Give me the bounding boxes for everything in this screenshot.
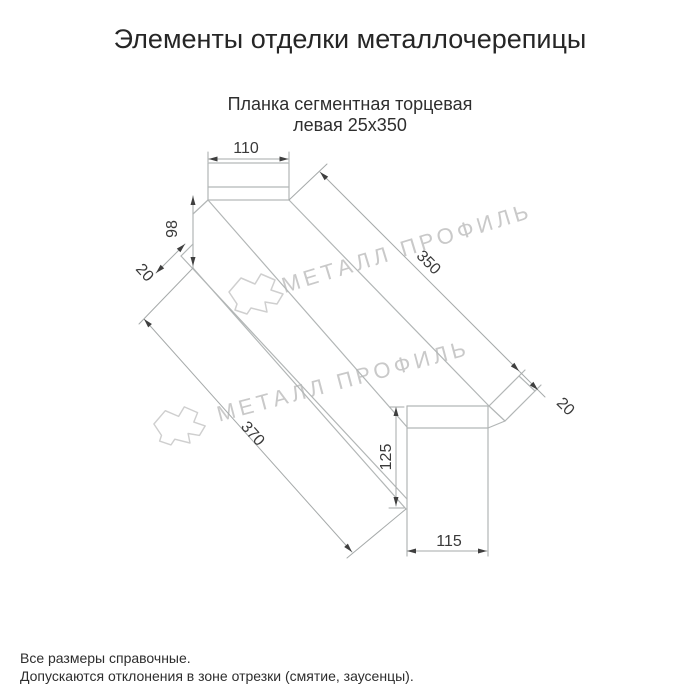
metal-profil-logo-icon <box>154 407 205 445</box>
product-name-line2: левая 25х350 <box>293 115 407 135</box>
drawing-page: Элементы отделки металлочерепицы Планка … <box>0 0 700 700</box>
dimension-labels: 110 98 20 350 20 370 125 115 <box>132 140 577 550</box>
dim-length-bottom: 370 <box>237 418 268 449</box>
product-name-line1: Планка сегментная торцевая <box>228 94 473 114</box>
metal-profil-logo-icon <box>229 274 283 314</box>
dim-left-height: 98 <box>164 220 181 238</box>
technical-drawing: Элементы отделки металлочерепицы Планка … <box>0 0 700 700</box>
page-title: Элементы отделки металлочерепицы <box>114 24 587 54</box>
dim-right-hem: 20 <box>553 395 578 420</box>
footer-note-line2: Допускаются отклонения в зоне отрезки (с… <box>20 668 414 684</box>
dim-end-height: 125 <box>378 444 395 471</box>
footer-note-line1: Все размеры справочные. <box>20 650 191 666</box>
dim-top-width: 110 <box>233 140 259 157</box>
watermark-text: МЕТАЛЛ ПРОФИЛЬ <box>279 198 535 298</box>
dim-end-width: 115 <box>436 533 462 550</box>
dim-left-hem: 20 <box>132 261 157 286</box>
